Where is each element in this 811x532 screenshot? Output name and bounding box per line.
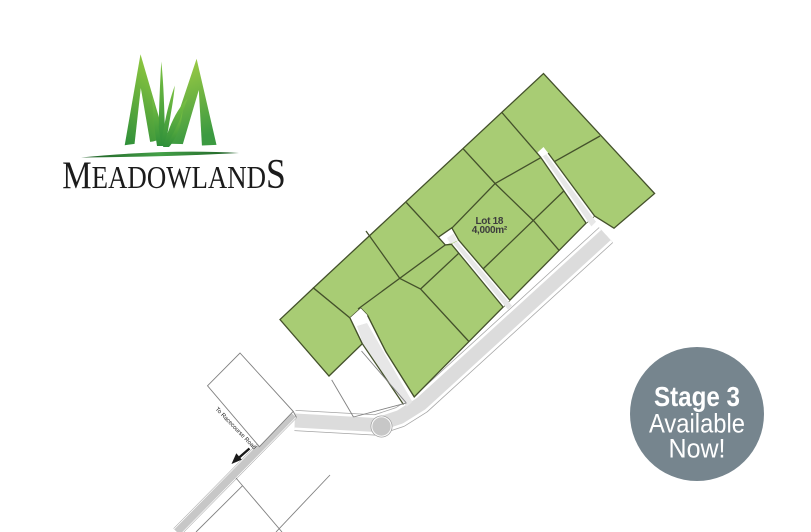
svg-text:Stage 3: Stage 3 <box>654 381 740 412</box>
svg-text:4,000m²: 4,000m² <box>472 225 508 236</box>
svg-text:Now!: Now! <box>669 433 726 463</box>
